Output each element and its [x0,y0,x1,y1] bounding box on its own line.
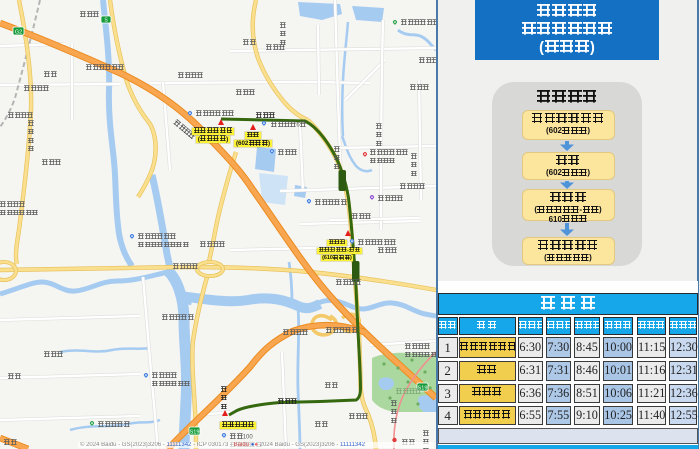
svg-text:S19: S19 [190,430,200,436]
svg-text:G2: G2 [15,30,22,36]
